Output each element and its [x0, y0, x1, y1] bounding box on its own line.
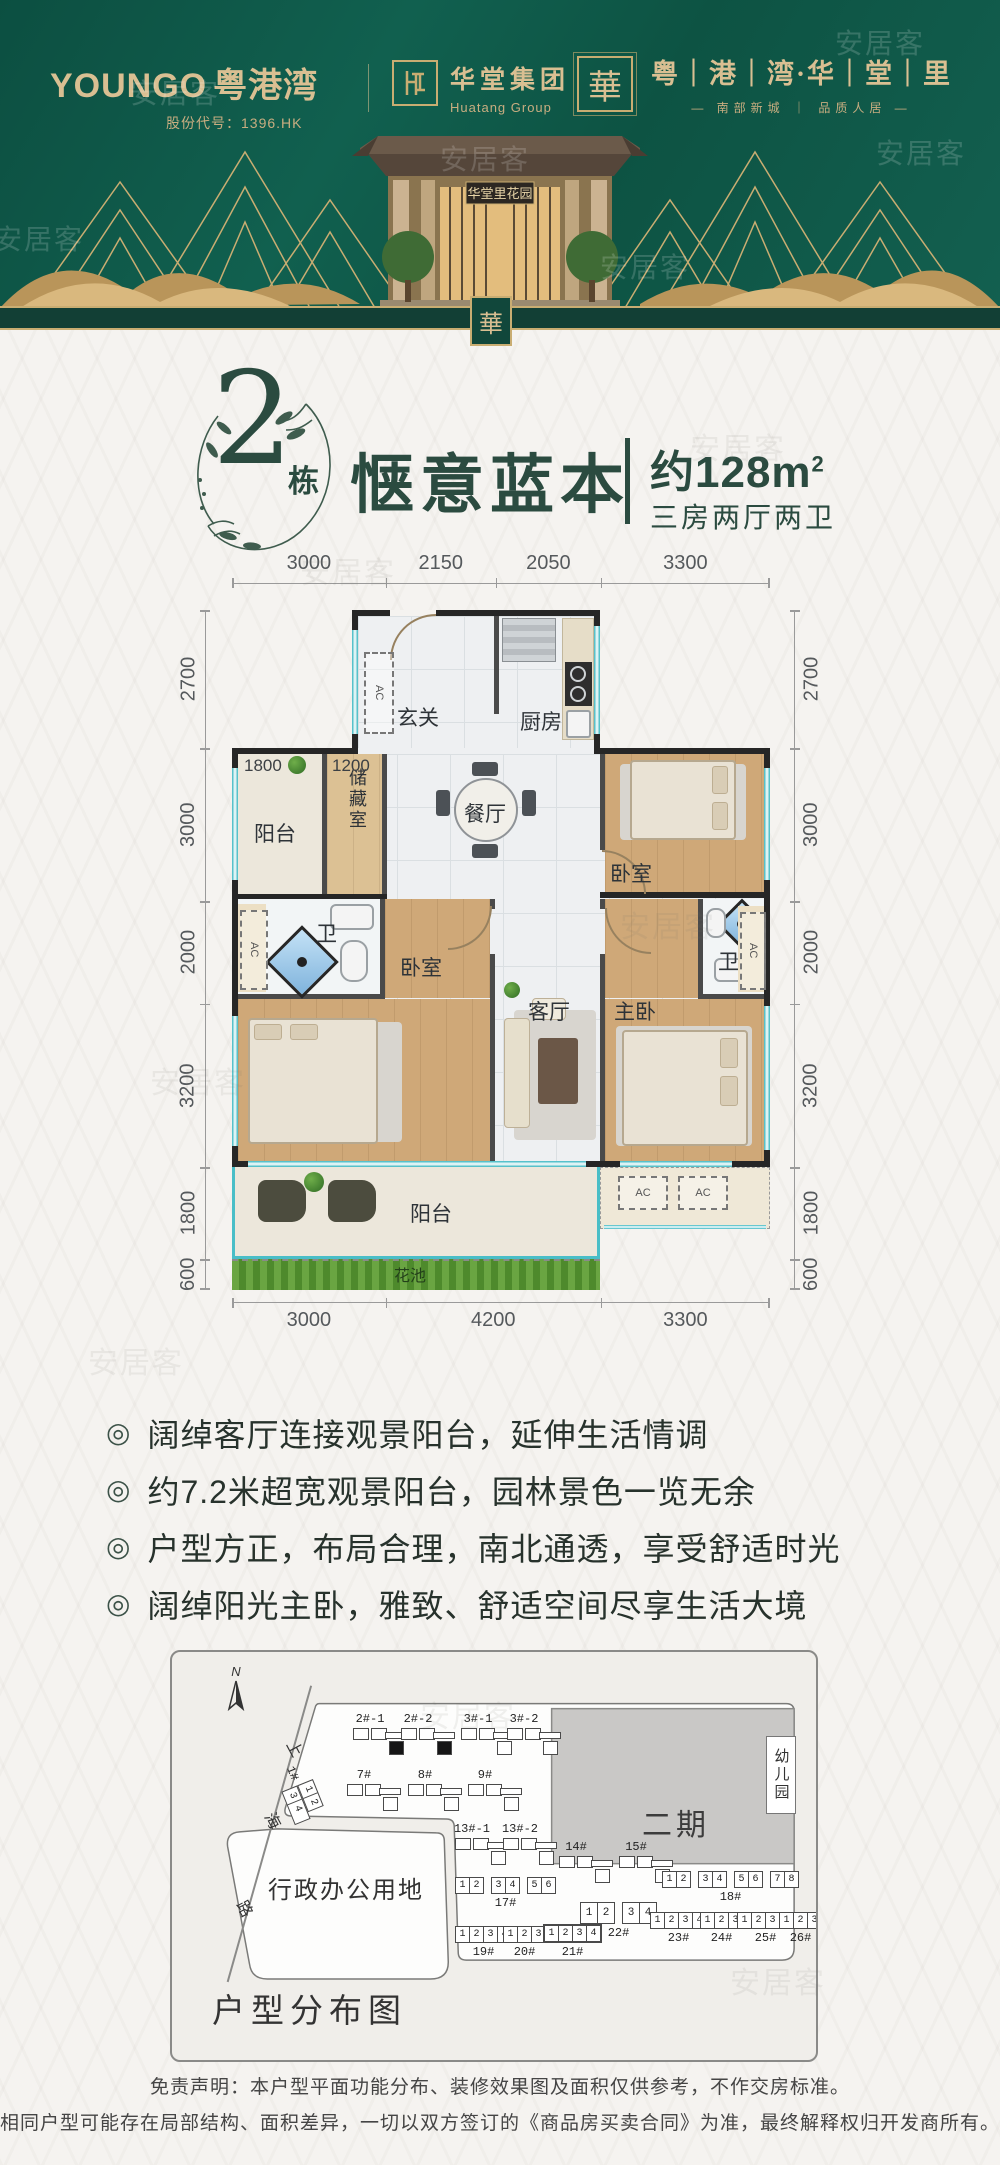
dim: 3300	[601, 1302, 770, 1334]
room-bedroom-sw: 卧室	[400, 952, 442, 982]
title-section: 2 栋 惬意蓝本 约128m2 三房两厅两卫	[0, 368, 1000, 548]
unit-cell: 8	[785, 1872, 798, 1887]
sofa-icon	[504, 1018, 530, 1128]
room-dining: 餐厅	[464, 798, 506, 828]
unit-group: 12	[455, 1877, 484, 1894]
unit-cell: 4	[506, 1878, 519, 1893]
ac-unit: AC	[240, 910, 268, 990]
window	[594, 626, 600, 734]
building-26: 12326#	[779, 1912, 818, 1945]
unit-cell: 6	[749, 1872, 762, 1887]
selling-point-1: ◎阔绰客厅连接观景阳台，延伸生活情调	[106, 1404, 966, 1461]
brand-divider	[368, 64, 369, 112]
unit-group: 123	[503, 1926, 546, 1943]
dim: 3000	[232, 552, 386, 584]
selling-points: ◎阔绰客厅连接观景阳台，延伸生活情调 ◎约7.2米超宽观景阳台，园林景色一览无余…	[106, 1404, 966, 1632]
brand-left: YOUNGO粤港湾 股份代号：1396.HK	[50, 58, 318, 133]
building-14: 14#	[550, 1840, 602, 1854]
building-7: 7#	[338, 1768, 390, 1782]
unit-group: 56	[527, 1877, 556, 1894]
building-20: 12320#	[503, 1926, 546, 1959]
kitchen-sink-icon	[566, 710, 591, 738]
pillow	[290, 1024, 318, 1040]
youngo-logo: YOUNGO	[50, 67, 207, 105]
area-text: 约128m2	[650, 436, 825, 500]
project-seal-icon: 華	[577, 56, 633, 112]
stove-icon	[565, 662, 592, 706]
dim: 2000	[760, 936, 862, 969]
room-master: 主卧	[614, 996, 656, 1026]
unit-group: 34	[491, 1877, 520, 1894]
site-plan-caption: 户型分布图	[212, 1984, 407, 2032]
toilet-icon	[340, 940, 368, 982]
huatang-monogram-icon	[392, 60, 438, 106]
stock-code: 股份代号：1396.HK	[50, 113, 318, 133]
window	[232, 1016, 238, 1146]
unit-cell: 3	[623, 1903, 640, 1923]
unit-cell: 4	[713, 1872, 726, 1887]
window	[764, 1006, 770, 1150]
unit-cell: 5	[528, 1878, 542, 1893]
unit-cell: 3	[492, 1878, 506, 1893]
unit-cell: 3	[699, 1872, 713, 1887]
unit-cell: 1	[545, 1926, 559, 1941]
wall	[600, 954, 605, 1161]
window	[764, 768, 770, 880]
unit-group: 12	[662, 1871, 691, 1888]
dim: 2050	[496, 552, 601, 584]
room-bath-right: 卫	[718, 946, 739, 976]
unit-cell: 3	[766, 1913, 780, 1928]
selling-point-4: ◎阔绰阳光主卧，雅致、舒适空间尽享生活大境	[106, 1575, 966, 1632]
building-18: 1234567818#	[662, 1871, 799, 1904]
pillow	[720, 1076, 738, 1106]
room-entry: 玄关	[397, 702, 439, 732]
selling-point-3: ◎户型方正，布局合理，南北通透，享受舒适时光	[106, 1518, 966, 1575]
project-slogan: — 南部新城 ｜ 品质人居 —	[651, 99, 952, 116]
dim: 2000	[137, 936, 239, 969]
dim: 1800	[143, 1197, 235, 1230]
building-3-1: 3#-1	[452, 1712, 504, 1726]
chair-icon	[522, 790, 536, 816]
huatang-group-en: Huatang Group	[450, 100, 570, 115]
unit-cell: 2	[677, 1872, 690, 1887]
dimensions-right: 2700 3000 2000 3200 1800 600	[794, 610, 828, 1290]
unit-cell: 1	[738, 1913, 752, 1928]
window	[352, 630, 358, 734]
kitchen-wall	[494, 616, 499, 714]
unit-cell: 1	[581, 1903, 598, 1923]
building-13-2: 13#-2	[494, 1822, 546, 1836]
project-name: 粤｜港｜湾·华｜堂｜里	[651, 52, 952, 91]
unit-cell: 7	[771, 1872, 785, 1887]
site-plan-panel: N 上 海 路 1# 1234 2#-1 2#-2 3#-1 3#-2 7# 8…	[170, 1650, 818, 2062]
building-8: 8#	[399, 1768, 451, 1782]
ac-unit: AC	[678, 1176, 728, 1210]
room-kitchen: 厨房	[520, 706, 562, 736]
unit-cell: 2	[794, 1913, 808, 1928]
inner-dim: 1800	[244, 756, 282, 776]
room-storage: 储藏室	[344, 768, 370, 831]
disclaimer-line-1: 免责声明：本户型平面功能分布、装修效果图及面积仅供参考，不作交房标准。	[0, 2072, 1000, 2099]
wall	[600, 754, 605, 850]
dim: 3000	[232, 1302, 386, 1334]
unit-group: 123	[779, 1912, 818, 1929]
building-22: 123422#	[580, 1902, 657, 1940]
dim: 4200	[386, 1302, 601, 1334]
unit-cell: 2	[715, 1913, 729, 1928]
coffee-table-icon	[538, 1038, 578, 1104]
selling-point-2: ◎约7.2米超宽观景阳台，园林景色一览无余	[106, 1461, 966, 1518]
unit-cell: 1	[780, 1913, 794, 1928]
wall	[698, 994, 764, 999]
ac-unit: AC	[364, 652, 394, 734]
building-number: 2	[212, 356, 293, 484]
brand-left-name: 粤港湾	[213, 67, 318, 105]
building-13-1: 13#-1	[446, 1822, 498, 1836]
pillow	[720, 1038, 738, 1068]
unit-cell: 6	[542, 1878, 555, 1893]
dim: 1800	[766, 1197, 858, 1230]
dim: 2150	[386, 552, 496, 584]
bullet-icon: ◎	[106, 1530, 131, 1563]
header-banner: 华堂里花园 YOUNGO粤港湾 股份代号：1396.HK 华堂集团 Huatan…	[0, 0, 1000, 330]
chair-icon	[472, 762, 498, 776]
chair-icon	[436, 790, 450, 816]
fridge-icon	[502, 618, 556, 662]
dimensions-left: 2700 3000 2000 3200 1800 600	[172, 610, 206, 1290]
open-passage	[358, 748, 594, 754]
gate-sign-text: 华堂里花园	[467, 186, 532, 201]
building-23: 123423#	[650, 1912, 707, 1945]
bullet-icon: ◎	[106, 1416, 131, 1449]
unit-cell: 3	[808, 1913, 818, 1928]
plant-icon	[304, 1172, 324, 1192]
huatang-group-name: 华堂集团	[450, 60, 570, 96]
ac-unit: AC	[618, 1176, 668, 1210]
brand-mid: 华堂集团 Huatang Group	[392, 60, 570, 115]
unit-group: 12	[580, 1902, 615, 1924]
title-divider	[625, 438, 630, 524]
pillow	[712, 766, 728, 794]
building-9: 9#	[459, 1768, 511, 1782]
room-bath-left: 卫	[316, 918, 337, 948]
inner-dim: 1200	[332, 756, 370, 776]
gate-structure	[352, 136, 648, 308]
unit-cell: 1	[663, 1872, 677, 1887]
unit-cell: 1	[651, 1913, 665, 1928]
layout-text: 三房两厅两卫	[650, 496, 836, 536]
disclaimer-line-2: 相同户型可能存在局部结构、面积差异，一切以双方签订的《商品房买卖合同》为准，最终…	[0, 2108, 1000, 2135]
kindergarten-box: 幼儿园	[766, 1736, 796, 1814]
lounge-chair-icon	[328, 1180, 376, 1222]
room-living: 客厅	[528, 996, 570, 1026]
building-unit: 栋	[288, 456, 319, 501]
seal-pendant-icon: 華	[470, 296, 512, 346]
wall	[382, 754, 387, 896]
phase2-label: 二期	[642, 1800, 710, 1844]
chair-icon	[472, 844, 498, 858]
unit-group: 34	[698, 1871, 727, 1888]
wall	[490, 954, 495, 1161]
unit-cell: 1	[504, 1927, 518, 1942]
bullet-icon: ◎	[106, 1587, 131, 1620]
building-2-2: 2#-2	[392, 1712, 444, 1726]
pillow	[712, 802, 728, 830]
dim: 3300	[601, 552, 770, 584]
wall	[232, 894, 387, 899]
unit-cell: 2	[470, 1878, 483, 1893]
bullet-icon: ◎	[106, 1473, 131, 1506]
ac-unit: AC	[740, 912, 766, 990]
floor-plan: AC 玄关 厨房 1800 1200 阳台 储藏室 餐厅 卧室 AC 卫	[232, 610, 770, 1290]
unit-cell: 2	[559, 1926, 573, 1941]
building-2-1: 2#-1	[344, 1712, 396, 1726]
dim: 600	[173, 1258, 204, 1291]
wall	[698, 899, 703, 998]
unit-cell: 1	[701, 1913, 715, 1928]
lounge-chair-icon	[258, 1180, 306, 1222]
dimensions-bottom: 3000 4200 3300	[232, 1302, 770, 1334]
unit-cell: 3	[679, 1913, 693, 1928]
unit-cell: 2	[752, 1913, 766, 1928]
unit-cell: 2	[665, 1913, 679, 1928]
building-17: 12345617#	[455, 1877, 556, 1910]
north-arrow-icon: N	[224, 1664, 248, 1718]
window	[232, 768, 238, 880]
brand-right: 華 粤｜港｜湾·华｜堂｜里 — 南部新城 ｜ 品质人居 —	[577, 52, 952, 116]
plant-icon	[288, 756, 306, 774]
room-balcony-bottom: 阳台	[410, 1198, 452, 1228]
plant-icon	[504, 982, 520, 998]
unit-cell: 3	[484, 1927, 498, 1942]
unit-cell: 2	[598, 1903, 614, 1923]
room-balcony-top: 阳台	[254, 818, 296, 848]
room-bedroom-ne: 卧室	[610, 858, 652, 888]
dim: 600	[796, 1258, 827, 1291]
toilet-icon	[706, 908, 726, 938]
unit-cell: 2	[518, 1927, 532, 1942]
plan-title: 惬意蓝本	[350, 434, 630, 526]
building-3-2: 3#-2	[498, 1712, 550, 1726]
room-flower-bed: 花池	[394, 1262, 426, 1286]
unit-cell: 2	[470, 1927, 484, 1942]
dimensions-top: 3000 2150 2050 3300	[232, 552, 770, 584]
unit-cell: 1	[456, 1878, 470, 1893]
window	[604, 1225, 766, 1229]
unit-group: 78	[770, 1871, 799, 1888]
unit-cell: 1	[456, 1927, 470, 1942]
unit-group: 1234	[650, 1912, 707, 1929]
unit-cell: 5	[735, 1872, 749, 1887]
admin-area-label: 行政办公用地	[268, 1870, 424, 1905]
watermark: 安居客	[88, 1338, 184, 1382]
unit-group: 56	[734, 1871, 763, 1888]
pillow	[254, 1024, 282, 1040]
